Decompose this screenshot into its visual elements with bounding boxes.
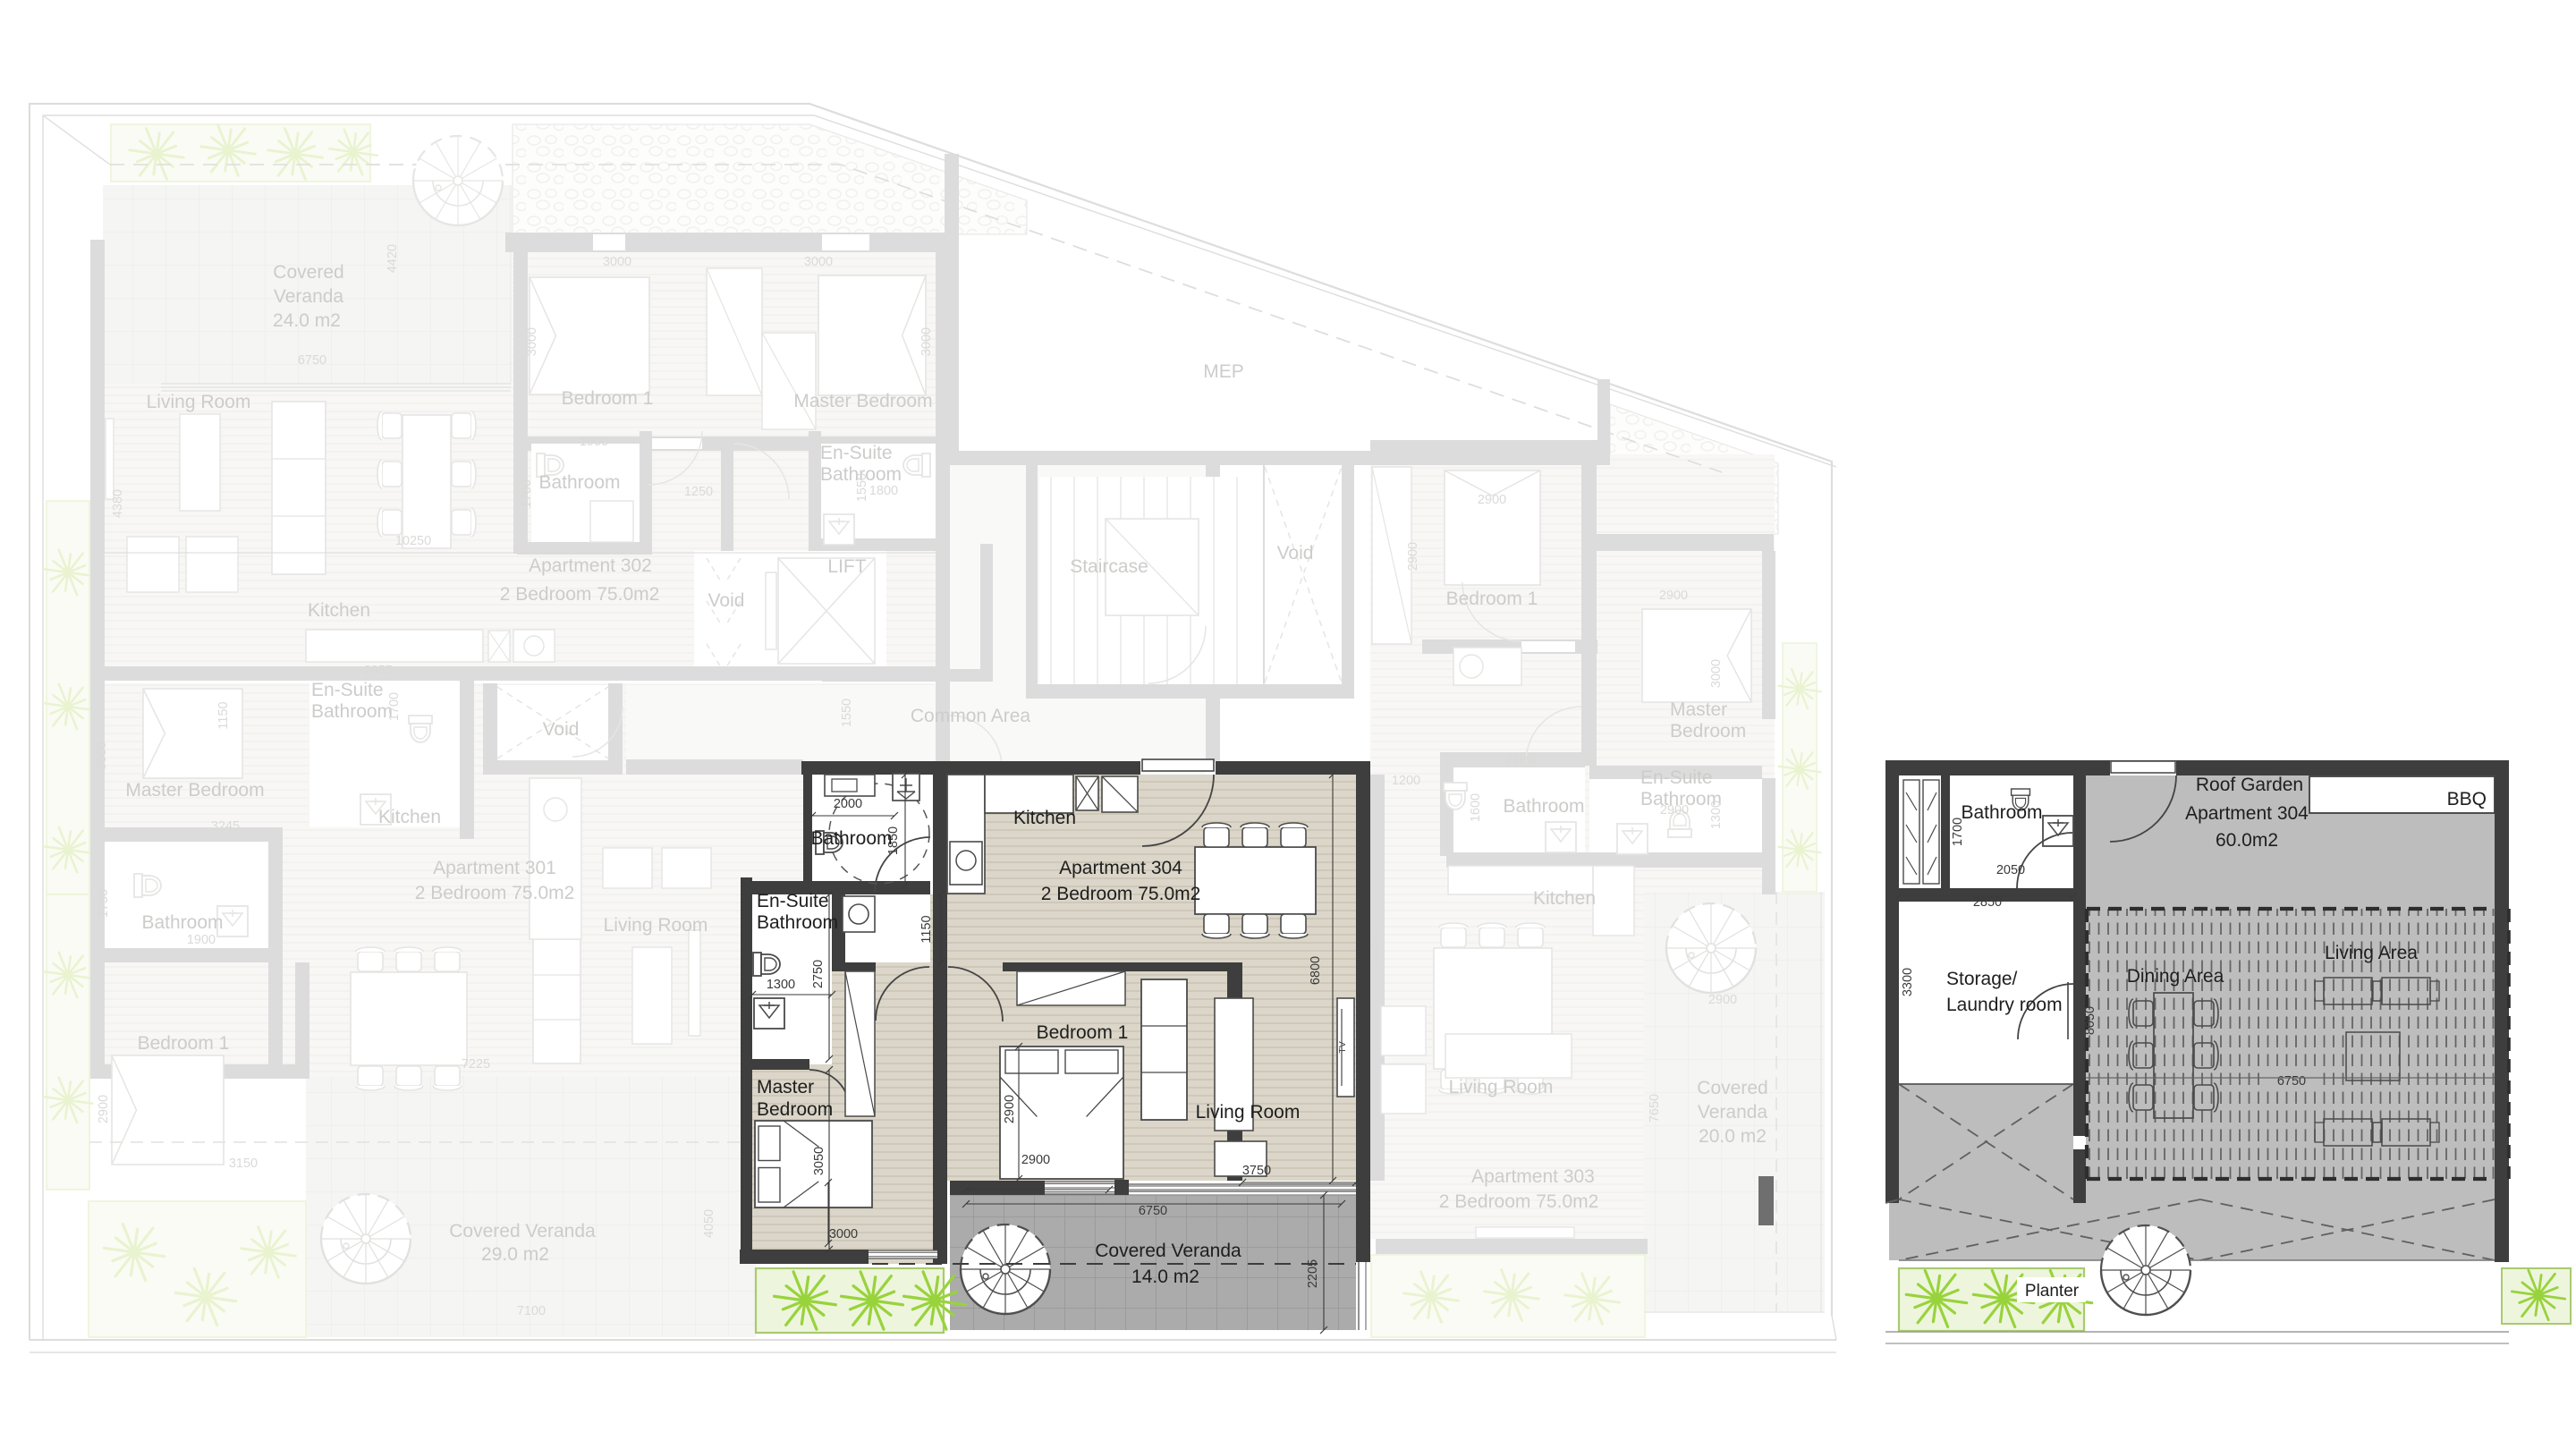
svg-text:7650: 7650: [1648, 1094, 1662, 1123]
svg-text:1900: 1900: [187, 933, 216, 947]
svg-text:Bedroom 1: Bedroom 1: [138, 1033, 230, 1054]
svg-text:Bedroom 1: Bedroom 1: [1446, 589, 1538, 609]
svg-text:Apartment 304: Apartment 304: [1059, 858, 1182, 878]
svg-text:Living Area: Living Area: [2325, 943, 2418, 963]
svg-text:Veranda: Veranda: [274, 286, 344, 307]
svg-text:10250: 10250: [395, 534, 431, 548]
svg-text:1250: 1250: [684, 485, 713, 499]
svg-text:Apartment 303: Apartment 303: [1471, 1166, 1595, 1187]
svg-text:1700: 1700: [520, 479, 534, 508]
svg-text:Bathroom: Bathroom: [810, 828, 892, 849]
svg-text:1700: 1700: [387, 692, 402, 721]
svg-text:4420: 4420: [386, 244, 400, 273]
svg-text:Bedroom: Bedroom: [757, 1099, 833, 1120]
svg-text:2900: 2900: [97, 1095, 111, 1123]
svg-text:2900: 2900: [1478, 493, 1506, 507]
svg-text:Laundry room: Laundry room: [1946, 995, 2063, 1015]
svg-text:1750: 1750: [97, 889, 111, 918]
svg-text:Living Room: Living Room: [147, 392, 251, 412]
svg-text:2 Bedroom 75.0m2: 2 Bedroom 75.0m2: [500, 584, 660, 605]
svg-text:Void: Void: [543, 719, 580, 740]
svg-text:Apartment 302: Apartment 302: [529, 555, 652, 576]
svg-text:Master Bedroom: Master Bedroom: [793, 391, 932, 411]
svg-text:6750: 6750: [2277, 1074, 2306, 1089]
svg-text:1600: 1600: [1469, 793, 1483, 822]
svg-text:2000: 2000: [834, 797, 862, 811]
svg-text:En-Suite: En-Suite: [757, 891, 829, 911]
svg-text:Apartment 304: Apartment 304: [2185, 803, 2309, 824]
svg-text:2 Bedroom 75.0m2: 2 Bedroom 75.0m2: [1041, 884, 1201, 904]
svg-text:6750: 6750: [1139, 1204, 1167, 1218]
svg-text:Bathroom: Bathroom: [538, 472, 620, 493]
svg-text:2 Bedroom 75.0m2: 2 Bedroom 75.0m2: [1439, 1191, 1599, 1212]
svg-text:2055: 2055: [364, 664, 393, 678]
svg-text:Void: Void: [1277, 543, 1314, 563]
svg-text:2 Bedroom 75.0m2: 2 Bedroom 75.0m2: [415, 883, 575, 903]
svg-text:24.0 m2: 24.0 m2: [273, 310, 341, 331]
svg-text:1550: 1550: [855, 473, 869, 502]
svg-text:En-Suite: En-Suite: [820, 443, 893, 463]
svg-text:2100: 2100: [1505, 752, 1534, 767]
svg-text:Kitchen: Kitchen: [1013, 808, 1076, 828]
svg-text:Bathroom: Bathroom: [757, 912, 838, 933]
svg-text:3245: 3245: [211, 819, 240, 834]
svg-text:3000: 3000: [603, 255, 631, 269]
svg-text:MEP: MEP: [1203, 361, 1244, 382]
svg-text:Covered Veranda: Covered Veranda: [449, 1221, 596, 1241]
svg-text:Staircase: Staircase: [1070, 556, 1148, 577]
svg-text:1900: 1900: [580, 435, 608, 449]
svg-text:3750: 3750: [1242, 1164, 1271, 1178]
svg-text:3000: 3000: [525, 327, 539, 356]
svg-text:7225: 7225: [462, 1057, 490, 1072]
svg-text:BBQ: BBQ: [2447, 789, 2487, 809]
svg-text:Living Room: Living Room: [604, 915, 708, 936]
svg-text:3300: 3300: [1901, 968, 1915, 996]
svg-text:Master: Master: [1670, 699, 1727, 720]
svg-text:2900: 2900: [1406, 542, 1420, 571]
svg-text:Apartment 301: Apartment 301: [433, 858, 556, 878]
svg-text:1150: 1150: [919, 915, 934, 943]
svg-text:Bathroom: Bathroom: [1503, 796, 1584, 817]
svg-text:Kitchen: Kitchen: [1533, 888, 1596, 909]
svg-text:Veranda: Veranda: [1698, 1102, 1768, 1123]
svg-text:2850: 2850: [1973, 895, 2002, 910]
svg-text:8050: 8050: [2083, 1006, 2097, 1035]
svg-text:Covered: Covered: [1697, 1078, 1767, 1098]
svg-text:29.0 m2: 29.0 m2: [481, 1244, 549, 1265]
svg-text:1300: 1300: [1709, 801, 1724, 829]
svg-text:Bathroom: Bathroom: [1961, 802, 2042, 823]
svg-text:3000: 3000: [829, 1227, 858, 1241]
svg-text:1150: 1150: [216, 701, 231, 729]
svg-text:6800: 6800: [1309, 956, 1323, 985]
svg-text:Roof Garden: Roof Garden: [2196, 775, 2303, 795]
svg-text:Common Area: Common Area: [911, 706, 1031, 726]
svg-text:1550: 1550: [840, 699, 854, 727]
svg-text:Kitchen: Kitchen: [378, 807, 441, 827]
svg-text:Kitchen: Kitchen: [308, 600, 370, 621]
svg-text:Dining Area: Dining Area: [2127, 966, 2224, 987]
svg-text:1800: 1800: [869, 484, 898, 498]
svg-text:Living Room: Living Room: [1196, 1102, 1301, 1123]
svg-text:3000: 3000: [919, 327, 934, 356]
svg-text:3000: 3000: [804, 255, 833, 269]
svg-text:Bathroom: Bathroom: [141, 912, 223, 933]
svg-text:6750: 6750: [298, 353, 326, 368]
svg-text:2900: 2900: [1021, 1153, 1050, 1167]
svg-text:3050: 3050: [95, 741, 109, 770]
svg-text:14.0 m2: 14.0 m2: [1131, 1267, 1199, 1287]
svg-text:3000: 3000: [1709, 659, 1724, 688]
svg-text:2900: 2900: [1708, 993, 1737, 1007]
svg-text:3050: 3050: [812, 1147, 826, 1175]
svg-text:En-Suite: En-Suite: [1640, 767, 1713, 788]
svg-text:LIFT: LIFT: [827, 556, 866, 577]
svg-text:2900: 2900: [1660, 803, 1689, 818]
svg-text:4050: 4050: [702, 1209, 716, 1238]
svg-text:Void: Void: [708, 590, 745, 611]
svg-text:TV: TV: [1337, 1041, 1348, 1053]
svg-text:Bedroom 1: Bedroom 1: [1037, 1022, 1129, 1043]
svg-text:Storage/: Storage/: [1946, 969, 2018, 989]
svg-text:2205: 2205: [1306, 1259, 1320, 1288]
svg-text:1200: 1200: [1392, 774, 1420, 788]
svg-text:4380: 4380: [111, 489, 125, 518]
svg-text:2900: 2900: [1003, 1095, 1017, 1123]
svg-text:Master Bedroom: Master Bedroom: [125, 780, 264, 801]
svg-text:3150: 3150: [229, 1157, 258, 1171]
svg-text:Bathroom: Bathroom: [311, 701, 393, 722]
svg-text:Covered: Covered: [273, 262, 343, 283]
svg-text:2750: 2750: [811, 960, 826, 988]
svg-text:7100: 7100: [517, 1304, 546, 1318]
svg-text:Bedroom 1: Bedroom 1: [562, 388, 654, 409]
svg-text:Master: Master: [757, 1077, 814, 1097]
svg-text:20.0 m2: 20.0 m2: [1699, 1126, 1767, 1147]
svg-text:En-Suite: En-Suite: [311, 680, 384, 700]
svg-text:1300: 1300: [767, 978, 795, 992]
svg-text:Bedroom: Bedroom: [1670, 721, 1746, 741]
svg-text:60.0m2: 60.0m2: [2216, 830, 2278, 851]
svg-text:Covered Veranda: Covered Veranda: [1095, 1241, 1241, 1261]
svg-text:2900: 2900: [1659, 589, 1688, 603]
svg-text:2050: 2050: [1996, 863, 2025, 877]
svg-text:Living Room: Living Room: [1449, 1077, 1554, 1097]
svg-text:Planter: Planter: [2025, 1282, 2080, 1301]
